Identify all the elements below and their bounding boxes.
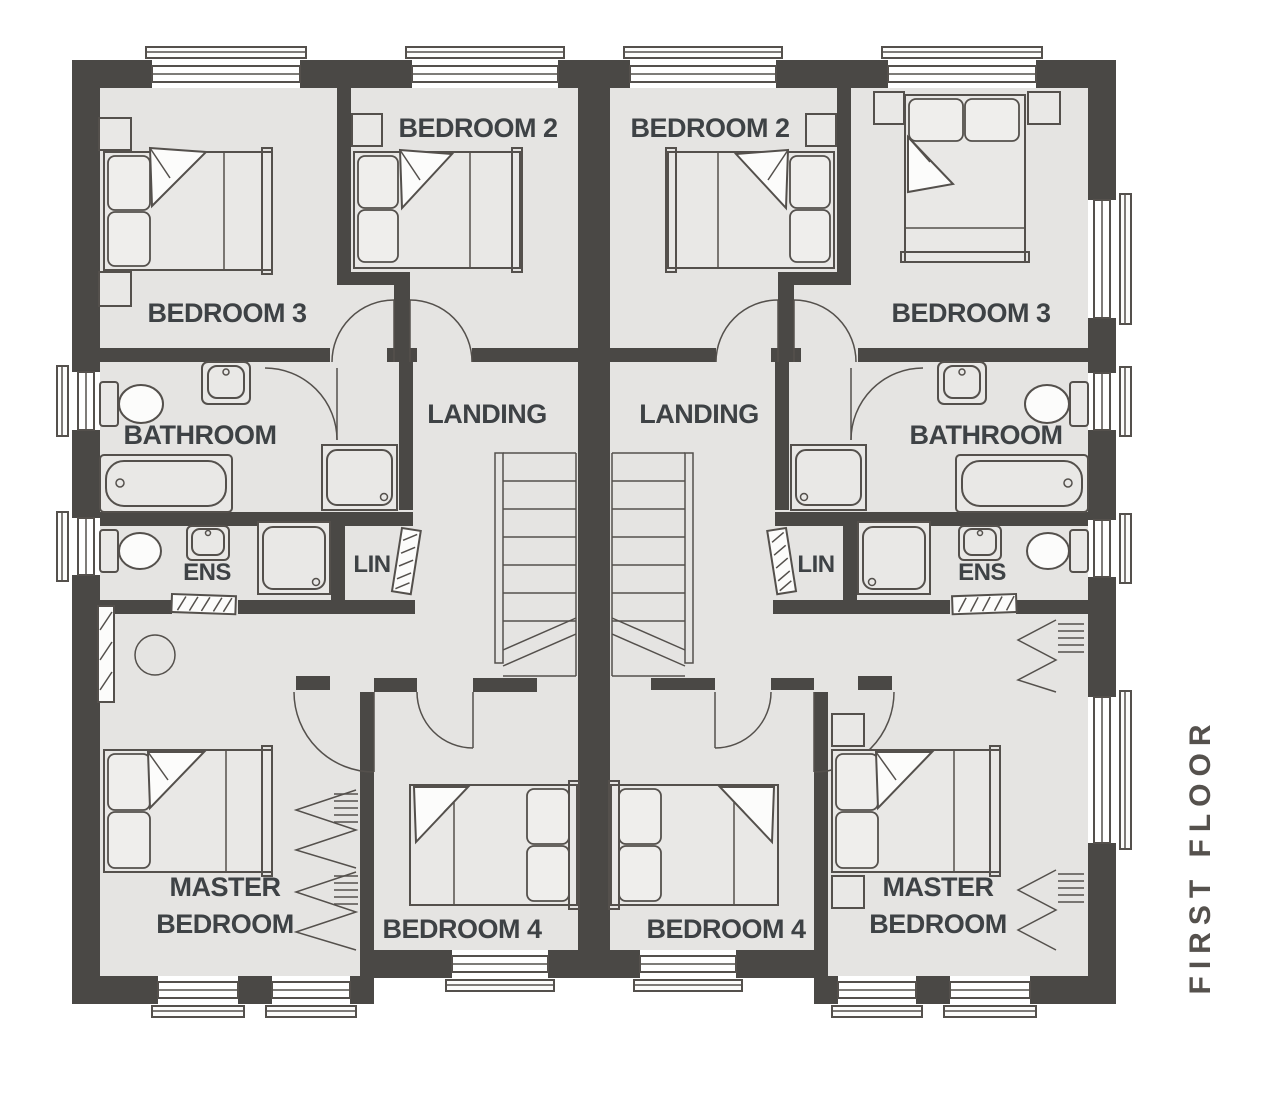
room-label-master-right-line1: MASTER	[883, 872, 994, 902]
bed-icon	[354, 148, 522, 272]
bed-icon	[901, 95, 1029, 262]
bed-icon	[104, 746, 272, 876]
room-label-bathroom-left: BATHROOM	[124, 420, 277, 450]
bed-icon	[410, 781, 579, 909]
window-icon	[1088, 514, 1131, 583]
room-label-ens-right: ENS	[958, 559, 1006, 586]
room-label-landing-left: LANDING	[427, 399, 547, 429]
mirror-panel-icon	[98, 606, 114, 702]
room-label-bedroom2-left: BEDROOM 2	[398, 113, 557, 143]
floorplan-page: BEDROOM 3 BEDROOM 2 BEDROOM 2 BEDROOM 3 …	[0, 0, 1280, 1104]
nightstand-icon	[806, 114, 836, 146]
sink-icon	[938, 362, 986, 404]
bed-icon	[104, 148, 272, 274]
room-label-master-right-line2: BEDROOM	[869, 909, 1007, 939]
room-label-bathroom-right: BATHROOM	[910, 420, 1063, 450]
room-label-lin-left: LIN	[353, 551, 390, 578]
hatched-door-icon	[952, 594, 1017, 614]
nightstand-icon	[832, 714, 864, 746]
nightstand-icon	[832, 876, 864, 908]
bed-icon	[832, 746, 1000, 876]
window-icon	[1088, 367, 1131, 436]
room-label-lin-right: LIN	[797, 551, 834, 578]
sink-icon	[187, 526, 229, 560]
shower-icon	[258, 522, 330, 594]
window-icon	[832, 976, 922, 1017]
nightstand-icon	[1028, 92, 1060, 124]
shower-icon	[858, 522, 930, 594]
room-label-bedroom2-right: BEDROOM 2	[630, 113, 789, 143]
toilet-icon	[1027, 530, 1088, 572]
toilet-icon	[100, 530, 161, 572]
window-icon	[624, 47, 782, 88]
party-wall	[578, 60, 610, 978]
nightstand-icon	[99, 118, 131, 150]
window-icon	[266, 976, 356, 1017]
room-label-bedroom3-left: BEDROOM 3	[147, 298, 307, 328]
window-icon	[152, 976, 244, 1017]
room-label-master-left-line1: MASTER	[170, 872, 281, 902]
nightstand-icon	[99, 272, 131, 306]
window-icon	[882, 47, 1042, 88]
bed-icon	[609, 781, 778, 909]
sink-icon	[959, 526, 1001, 560]
window-icon	[634, 950, 742, 991]
window-icon	[146, 47, 306, 88]
window-icon	[1088, 691, 1131, 849]
hatched-door-icon	[171, 594, 236, 614]
room-label-bedroom3-right: BEDROOM 3	[891, 298, 1051, 328]
window-icon	[1088, 194, 1131, 324]
window-icon	[406, 47, 564, 88]
window-icon	[446, 950, 554, 991]
bed-icon	[666, 148, 834, 272]
bathtub-icon	[100, 455, 232, 512]
sink-icon	[202, 362, 250, 404]
nightstand-icon	[874, 92, 904, 124]
room-label-bedroom4-right: BEDROOM 4	[646, 914, 806, 944]
shower-icon	[322, 445, 397, 510]
floor-title: FIRST FLOOR	[1184, 718, 1217, 995]
window-icon	[57, 366, 100, 436]
room-label-master-left-line2: BEDROOM	[156, 909, 294, 939]
shower-icon	[791, 445, 866, 510]
nightstand-icon	[352, 114, 382, 146]
room-label-bedroom4-left: BEDROOM 4	[382, 914, 542, 944]
window-icon	[57, 512, 100, 581]
window-icon	[944, 976, 1036, 1017]
bathtub-icon	[956, 455, 1088, 512]
room-label-landing-right: LANDING	[639, 399, 759, 429]
room-label-ens-left: ENS	[183, 559, 231, 586]
floorplan-drawing: BEDROOM 3 BEDROOM 2 BEDROOM 2 BEDROOM 3 …	[0, 0, 1280, 1104]
